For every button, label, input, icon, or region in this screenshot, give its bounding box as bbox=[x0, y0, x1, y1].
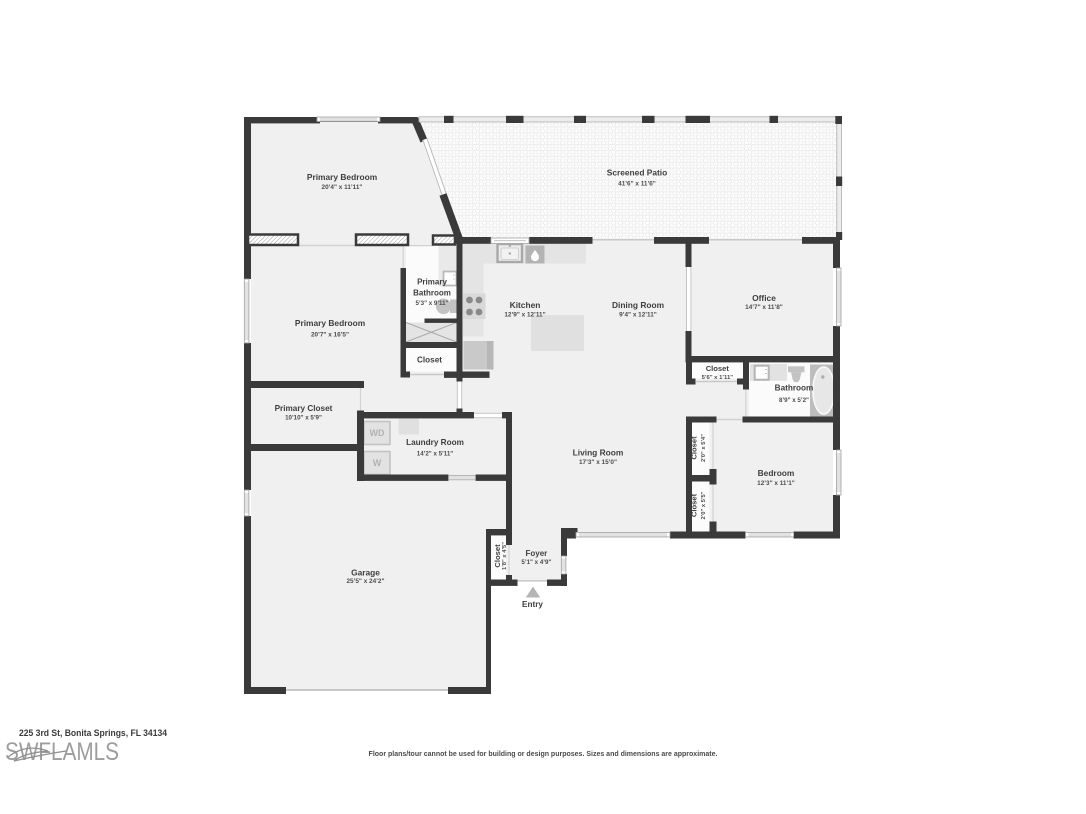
svg-text:Entry: Entry bbox=[522, 600, 543, 609]
svg-text:Living Room: Living Room bbox=[573, 448, 624, 458]
svg-text:20’4" x 11’11": 20’4" x 11’11" bbox=[322, 184, 363, 191]
svg-text:41’6" x 11’6": 41’6" x 11’6" bbox=[618, 181, 656, 188]
svg-text:Laundry Room: Laundry Room bbox=[406, 438, 464, 447]
svg-text:Floor plans/tour cannot be use: Floor plans/tour cannot be used for buil… bbox=[369, 751, 718, 758]
svg-text:2’0" x 5’5": 2’0" x 5’5" bbox=[701, 491, 707, 519]
svg-text:Primary Bedroom: Primary Bedroom bbox=[295, 318, 365, 328]
svg-text:WD: WD bbox=[370, 428, 385, 438]
svg-text:Closet: Closet bbox=[706, 364, 730, 373]
svg-text:Closet: Closet bbox=[690, 436, 699, 460]
svg-text:5’1" x 4’9": 5’1" x 4’9" bbox=[521, 559, 551, 566]
svg-text:Primary Bedroom: Primary Bedroom bbox=[307, 172, 377, 182]
svg-text:20’7" x 16’5": 20’7" x 16’5" bbox=[311, 331, 349, 338]
svg-text:Closet: Closet bbox=[690, 493, 699, 517]
svg-text:Bedroom: Bedroom bbox=[758, 468, 795, 478]
svg-text:Primary Closet: Primary Closet bbox=[275, 404, 333, 413]
svg-text:9’4" x 12’11": 9’4" x 12’11" bbox=[619, 312, 657, 319]
svg-text:14’2" x 5’11": 14’2" x 5’11" bbox=[417, 451, 454, 458]
svg-text:Bathroom: Bathroom bbox=[775, 384, 814, 393]
svg-text:Closet: Closet bbox=[493, 544, 502, 568]
svg-text:5’6" x 1’11": 5’6" x 1’11" bbox=[702, 375, 734, 381]
svg-text:1’8" x 4’5": 1’8" x 4’5" bbox=[502, 542, 508, 570]
svg-text:W: W bbox=[373, 458, 382, 468]
svg-text:5’3" x 9’11": 5’3" x 9’11" bbox=[415, 300, 448, 307]
svg-text:8’9" x 5’2": 8’9" x 5’2" bbox=[779, 397, 809, 404]
svg-text:14’7" x 11’8": 14’7" x 11’8" bbox=[745, 304, 783, 311]
svg-text:Closet: Closet bbox=[417, 356, 442, 365]
svg-text:Office: Office bbox=[752, 293, 776, 303]
svg-text:12’3" x 11’1": 12’3" x 11’1" bbox=[757, 480, 795, 487]
svg-text:2’0" x 5’4": 2’0" x 5’4" bbox=[701, 434, 707, 462]
svg-text:Dining Room: Dining Room bbox=[612, 300, 664, 310]
svg-text:17’3" x 15’0": 17’3" x 15’0" bbox=[579, 459, 617, 466]
svg-text:Foyer: Foyer bbox=[526, 549, 548, 558]
svg-text:Primary: Primary bbox=[417, 278, 447, 287]
svg-text:Garage: Garage bbox=[351, 568, 380, 578]
svg-text:Kitchen: Kitchen bbox=[510, 300, 541, 310]
svg-text:Screened Patio: Screened Patio bbox=[607, 168, 668, 178]
svg-text:25’5" x 24’2": 25’5" x 24’2" bbox=[346, 578, 384, 585]
svg-text:12’9" x 12’11": 12’9" x 12’11" bbox=[504, 312, 545, 319]
svg-text:Bathroom: Bathroom bbox=[413, 289, 451, 298]
svg-text:10’10" x 5’9": 10’10" x 5’9" bbox=[285, 415, 322, 422]
